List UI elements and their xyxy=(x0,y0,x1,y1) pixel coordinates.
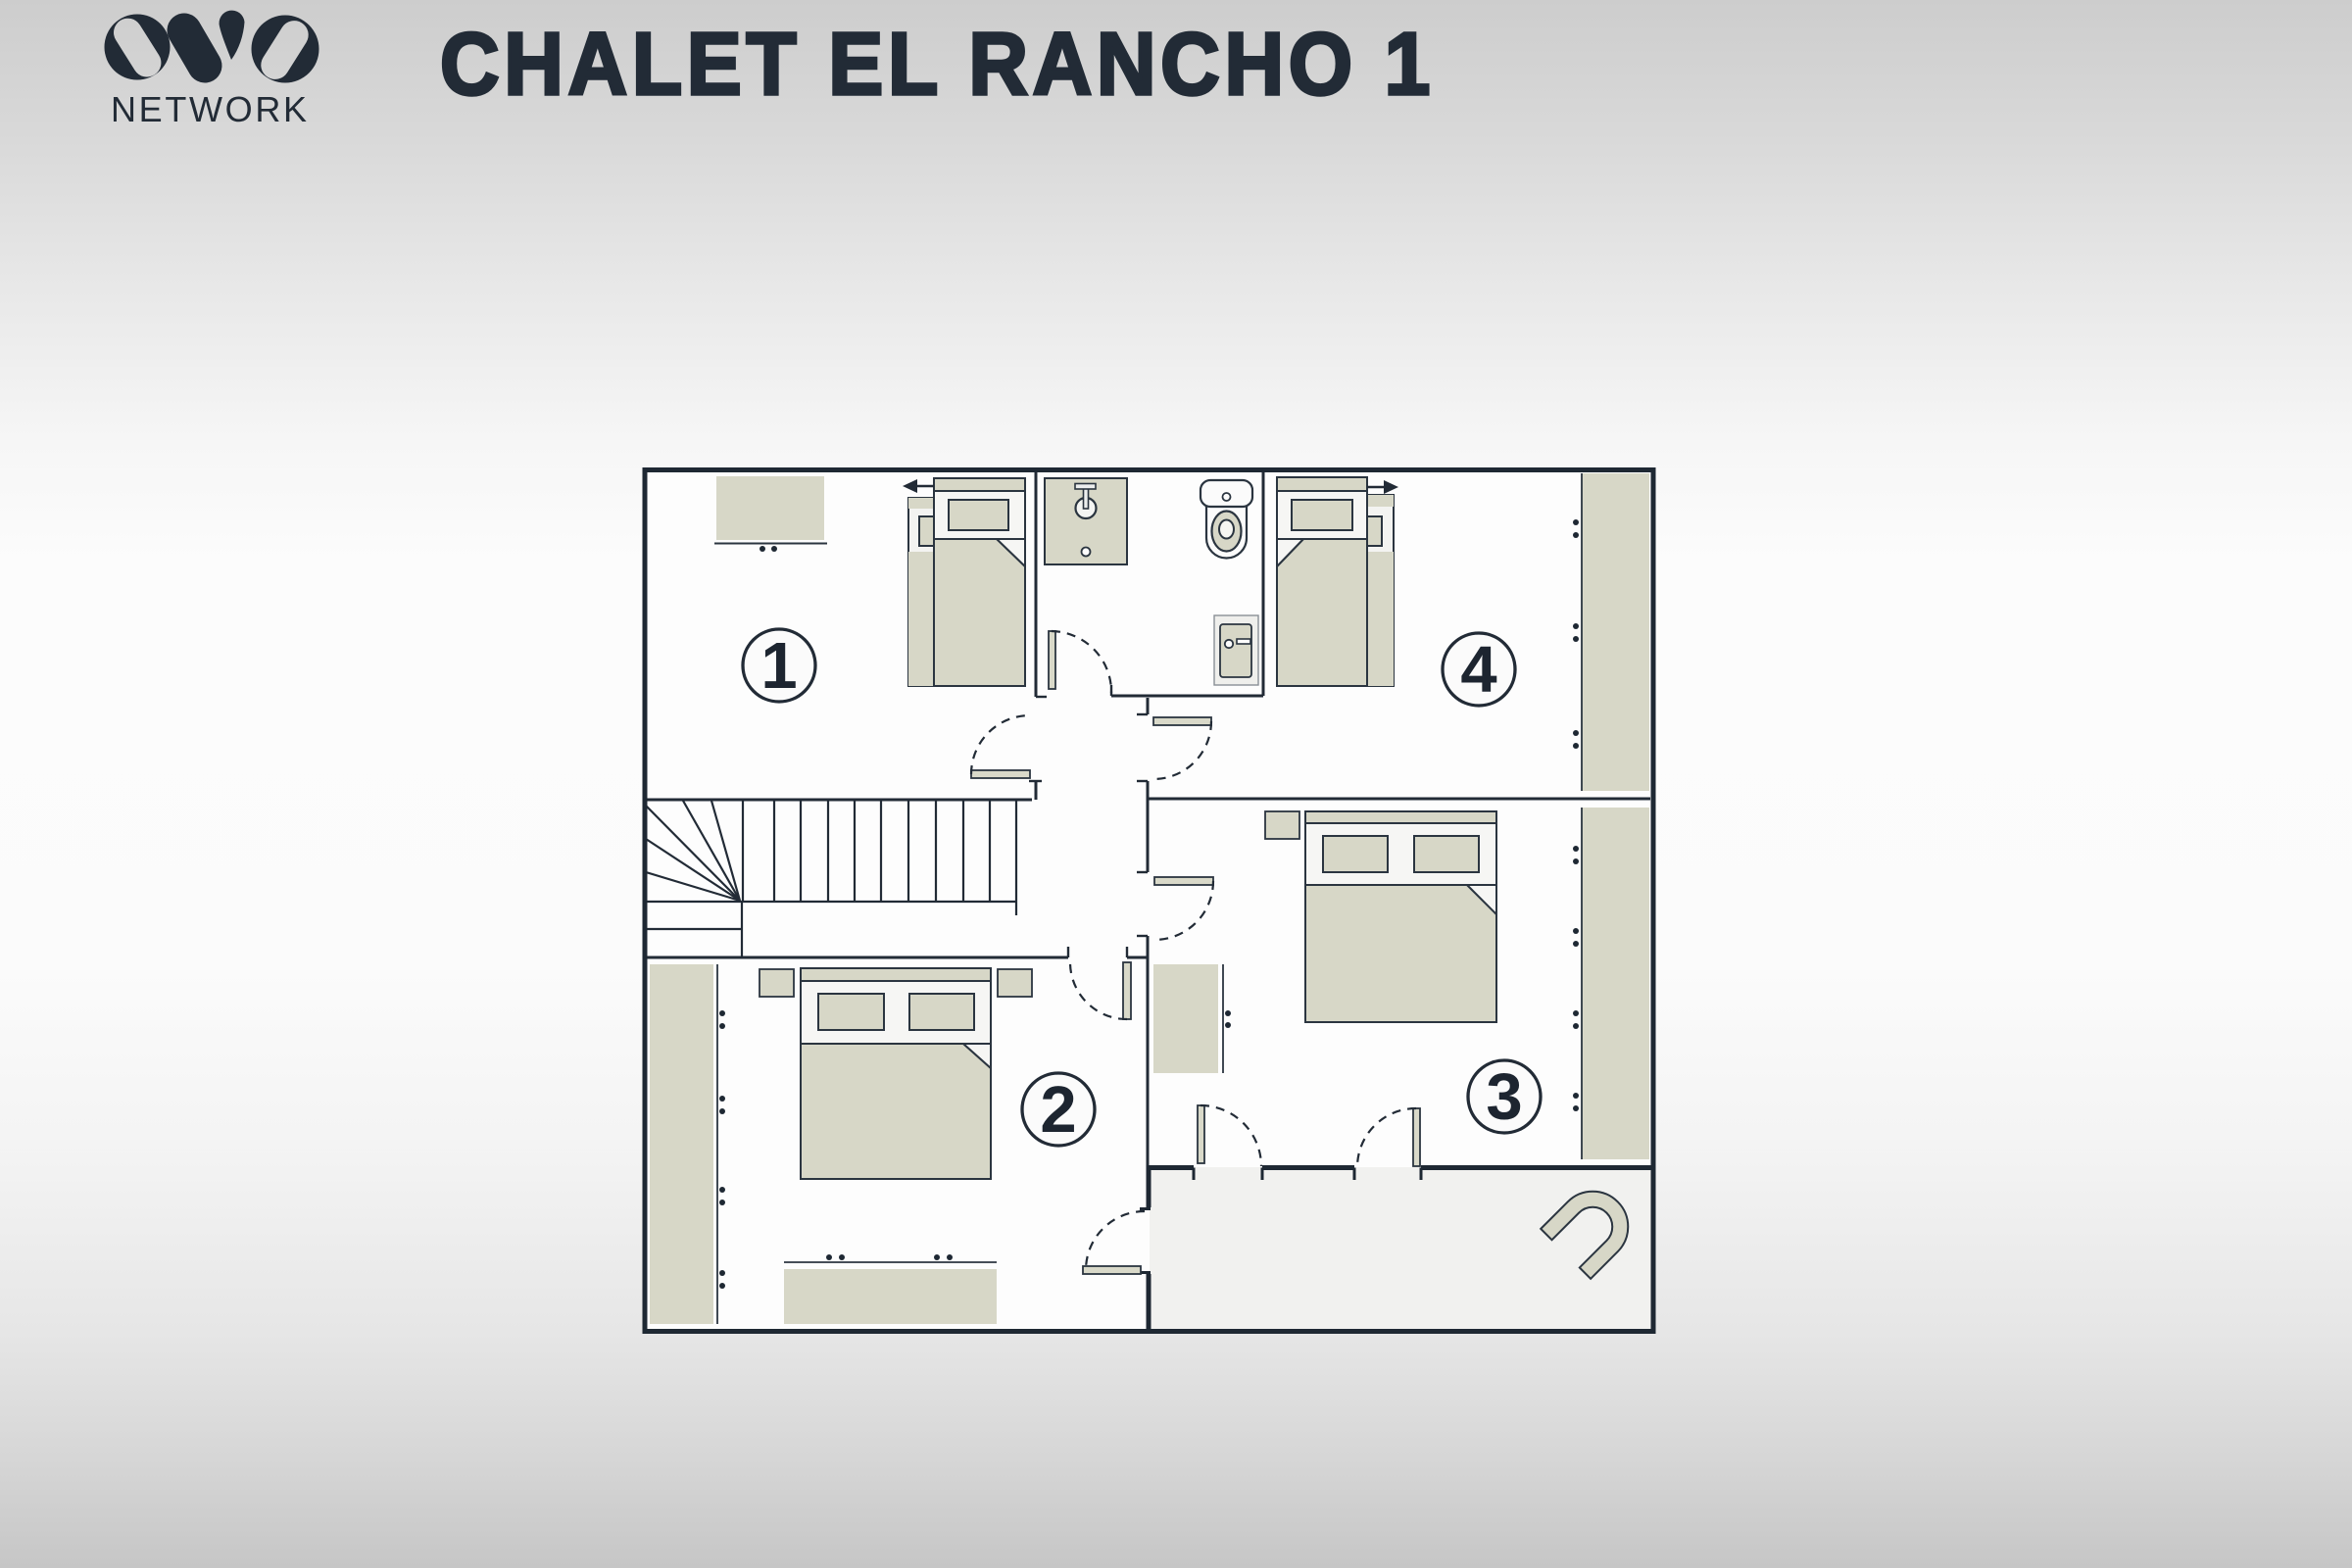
svg-text:2: 2 xyxy=(1040,1073,1076,1147)
svg-text:3: 3 xyxy=(1486,1060,1522,1134)
svg-text:4: 4 xyxy=(1460,633,1496,707)
svg-text:NETWORK: NETWORK xyxy=(111,89,307,129)
svg-text:CHALET EL RANCHO 1: CHALET EL RANCHO 1 xyxy=(440,16,1435,114)
svg-text:1: 1 xyxy=(760,629,797,703)
